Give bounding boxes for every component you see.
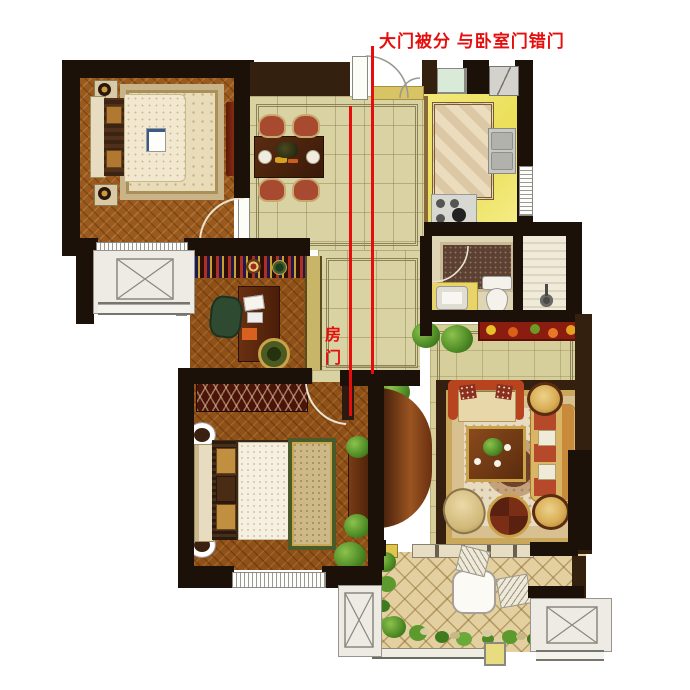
ac-platform-right-x <box>546 606 598 644</box>
wall <box>370 540 386 556</box>
terrace-shrub-row <box>382 616 406 638</box>
bed-pillow <box>106 150 122 168</box>
wall <box>184 238 310 256</box>
floor-plan: 大门被分 与卧室门错门 房门 <box>0 0 690 690</box>
wall <box>76 248 94 324</box>
potted-plant <box>346 436 370 458</box>
dining-chair <box>292 114 320 138</box>
terrace-table <box>452 570 496 614</box>
master-headboard <box>194 444 214 542</box>
stove-burner <box>436 199 445 208</box>
desk-papers <box>247 312 263 323</box>
wall <box>530 542 578 556</box>
wall <box>568 450 592 550</box>
wall <box>513 230 523 314</box>
sofa-pillow <box>495 384 513 400</box>
dining-chair <box>292 178 320 202</box>
desk-papers <box>243 295 265 312</box>
wall <box>530 222 570 236</box>
terrace-stones <box>420 628 430 635</box>
wall <box>250 62 350 96</box>
round-side-table <box>487 494 531 538</box>
wall <box>566 222 582 314</box>
sofa-pillow <box>459 384 477 400</box>
sofa-pillow <box>538 430 556 446</box>
washbasin <box>436 286 468 310</box>
wall <box>62 60 254 78</box>
wall <box>575 314 592 454</box>
sink-basin <box>491 132 513 150</box>
bed-pillow <box>216 476 236 502</box>
kitchen-window <box>437 68 467 94</box>
table-cup <box>504 444 511 451</box>
dining-chair <box>258 114 286 138</box>
master-bedroom-window <box>232 572 326 588</box>
sink-basin <box>491 152 513 170</box>
ac-platform-left-rail <box>98 302 190 315</box>
entry-door-arc <box>352 50 432 110</box>
terrace-drain-box <box>484 642 506 666</box>
shower-arm <box>545 284 548 296</box>
terrace-chair <box>496 573 533 608</box>
bathroom-door-arc <box>430 244 472 286</box>
decor-plate <box>272 260 287 275</box>
dining-food <box>276 142 298 158</box>
bed-tray <box>146 128 166 152</box>
wall <box>178 368 312 384</box>
annotation-main-note: 大门被分 与卧室门错门 <box>379 27 565 52</box>
wall <box>234 62 250 198</box>
wall <box>178 368 194 580</box>
sofa-arm <box>448 380 458 420</box>
ac-platform-bottom-x <box>344 592 374 648</box>
sofa-pillow <box>538 464 556 480</box>
wall <box>178 566 234 588</box>
table-cup <box>474 458 481 465</box>
table-cup <box>494 460 501 467</box>
master-bed-rug <box>288 438 336 550</box>
bed-pillow <box>106 106 122 124</box>
stove-burner <box>452 208 466 222</box>
desk-pad <box>242 328 257 340</box>
potted-plant <box>344 514 370 538</box>
nightstand-lamp <box>94 184 118 206</box>
bed-pillow <box>216 504 236 530</box>
bed-pillow <box>216 448 236 474</box>
wall <box>420 236 432 336</box>
ottoman <box>527 382 563 416</box>
kitchen-corner-window <box>489 66 519 96</box>
annotation-line-right <box>371 46 374 374</box>
sofa-cushion <box>534 444 556 462</box>
table-plant <box>483 438 503 456</box>
study-round-mat <box>258 338 290 370</box>
kitchen-counter-divider <box>424 96 428 222</box>
kitchen-island <box>432 102 494 200</box>
annotation-line-left <box>349 106 352 416</box>
ac-platform-right-rail <box>536 650 604 661</box>
dining-chair <box>258 178 286 202</box>
decor-plate <box>246 259 261 274</box>
wall <box>420 310 580 322</box>
annotation-room-door-note: 房门 <box>318 326 342 372</box>
dining-plate <box>258 150 272 164</box>
kitchen-side-window <box>519 166 533 216</box>
ottoman <box>532 494 570 530</box>
wall <box>340 370 420 386</box>
flower-dots <box>486 325 496 335</box>
ac-platform-left-x <box>116 258 174 300</box>
dining-plate <box>306 150 320 164</box>
master-wardrobe <box>196 382 308 412</box>
curved-cabinet <box>378 388 432 528</box>
wall <box>528 586 584 598</box>
wall <box>62 60 80 256</box>
stove-burner <box>450 199 459 208</box>
terrace-parapet <box>372 648 490 659</box>
indoor-tree <box>441 325 473 353</box>
